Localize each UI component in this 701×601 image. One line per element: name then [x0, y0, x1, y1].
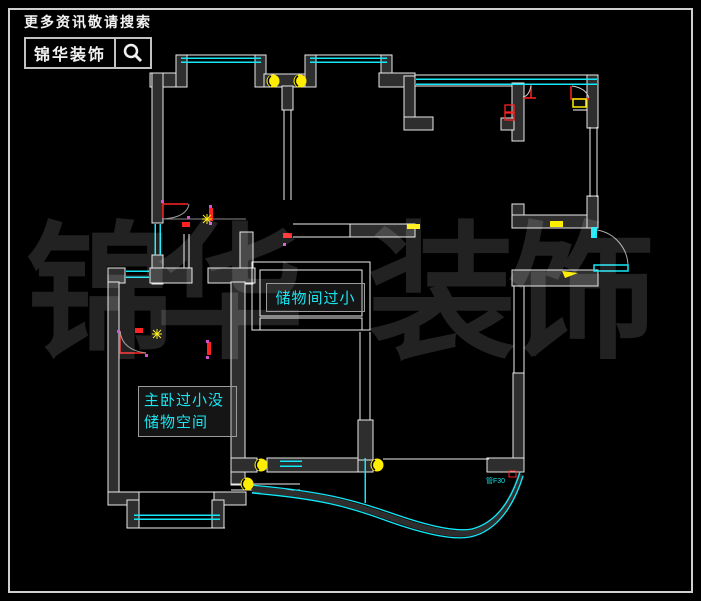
magnifier-icon [116, 39, 150, 67]
master-note-line2: 储物空间 [144, 412, 236, 434]
balcony-curve [250, 472, 523, 538]
entrance-door [591, 227, 628, 271]
storage-room-note-text: 储物间过小 [275, 287, 355, 308]
magenta-endpoint-dots [117, 200, 286, 359]
floorplan-screenshot: 锦 华 装 饰 储物间过小 主卧过小没 储物空间 管F30 更多资讯敬请搜索 锦… [0, 0, 701, 601]
pipe-label: 管F30 [486, 476, 505, 486]
logo-block: 更多资讯敬请搜索 锦华装饰 [24, 12, 152, 69]
storage-room-note: 储物间过小 [266, 283, 365, 312]
master-note-line1: 主卧过小没 [144, 390, 236, 412]
logo-tagline: 更多资讯敬请搜索 [24, 12, 152, 32]
logo-brand-name: 锦华装饰 [26, 39, 116, 67]
master-bedroom-note: 主卧过小没 储物空间 [138, 386, 237, 437]
logo-box: 锦华装饰 [24, 37, 152, 69]
